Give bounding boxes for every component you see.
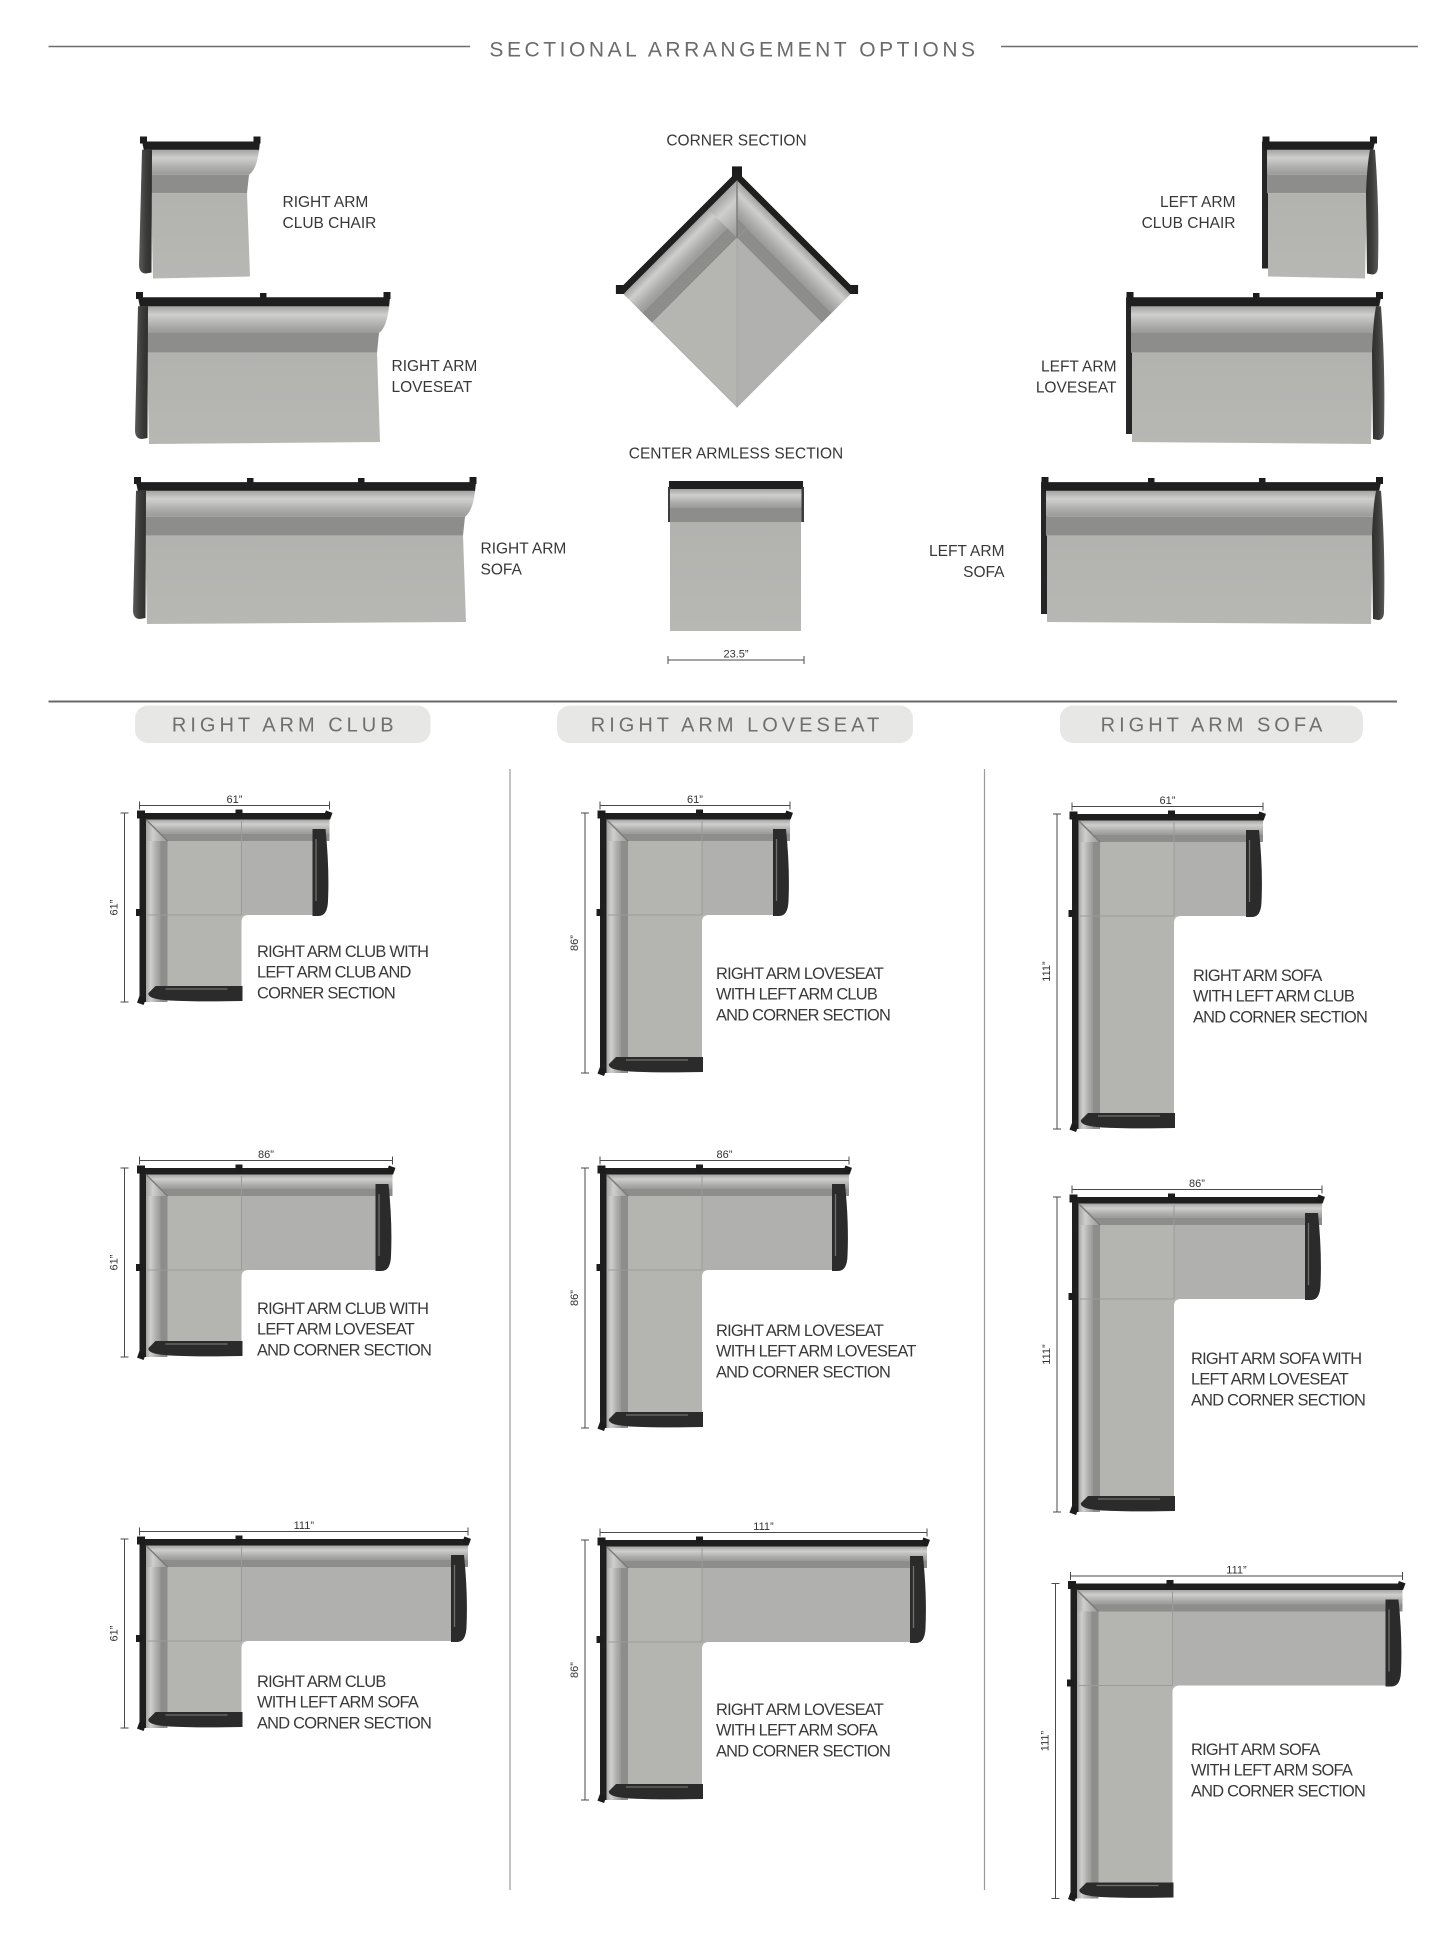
svg-text:RIGHT ARM LOVESEAT: RIGHT ARM LOVESEAT — [591, 715, 883, 737]
svg-text:111”: 111” — [1040, 1730, 1052, 1751]
svg-text:SECTIONAL ARRANGEMENT OPTIONS: SECTIONAL ARRANGEMENT OPTIONS — [489, 38, 978, 61]
svg-text:61”: 61” — [687, 794, 703, 806]
svg-text:86”: 86” — [569, 1290, 581, 1306]
svg-text:CENTER ARMLESS SECTION: CENTER ARMLESS SECTION — [629, 446, 843, 463]
svg-text:111”: 111” — [294, 1520, 315, 1532]
svg-text:111”: 111” — [1041, 961, 1053, 982]
svg-text:RIGHT ARM SOFA: RIGHT ARM SOFA — [1101, 715, 1327, 737]
svg-text:86”: 86” — [717, 1149, 733, 1161]
svg-text:RIGHT ARM LOVESEATWITH LEFT AR: RIGHT ARM LOVESEATWITH LEFT ARM CLUBAND … — [716, 965, 890, 1024]
svg-text:RIGHT ARM LOVESEATWITH LEFT AR: RIGHT ARM LOVESEATWITH LEFT ARM SOFAAND … — [716, 1701, 890, 1760]
svg-text:23.5”: 23.5” — [723, 648, 748, 660]
svg-text:86”: 86” — [258, 1149, 274, 1161]
svg-text:RIGHT ARM SOFA WITHLEFT ARM LO: RIGHT ARM SOFA WITHLEFT ARM LOVESEATAND … — [1191, 1350, 1365, 1409]
svg-text:61”: 61” — [109, 1254, 121, 1270]
svg-text:86”: 86” — [1189, 1178, 1205, 1190]
svg-text:86”: 86” — [569, 935, 581, 951]
svg-text:111”: 111” — [753, 1521, 774, 1533]
svg-text:CORNER SECTION: CORNER SECTION — [666, 133, 806, 150]
svg-text:RIGHT ARM CLUB WITHLEFT ARM LO: RIGHT ARM CLUB WITHLEFT ARM LOVESEATAND … — [257, 1300, 431, 1359]
svg-text:111”: 111” — [1041, 1344, 1053, 1365]
svg-text:RIGHT ARM CLUB: RIGHT ARM CLUB — [172, 715, 398, 737]
svg-text:61”: 61” — [109, 1625, 121, 1641]
svg-text:61”: 61” — [227, 794, 243, 806]
svg-text:61”: 61” — [109, 899, 121, 915]
svg-text:111”: 111” — [1226, 1564, 1247, 1576]
svg-text:86”: 86” — [569, 1662, 581, 1678]
svg-text:61”: 61” — [1160, 795, 1176, 807]
